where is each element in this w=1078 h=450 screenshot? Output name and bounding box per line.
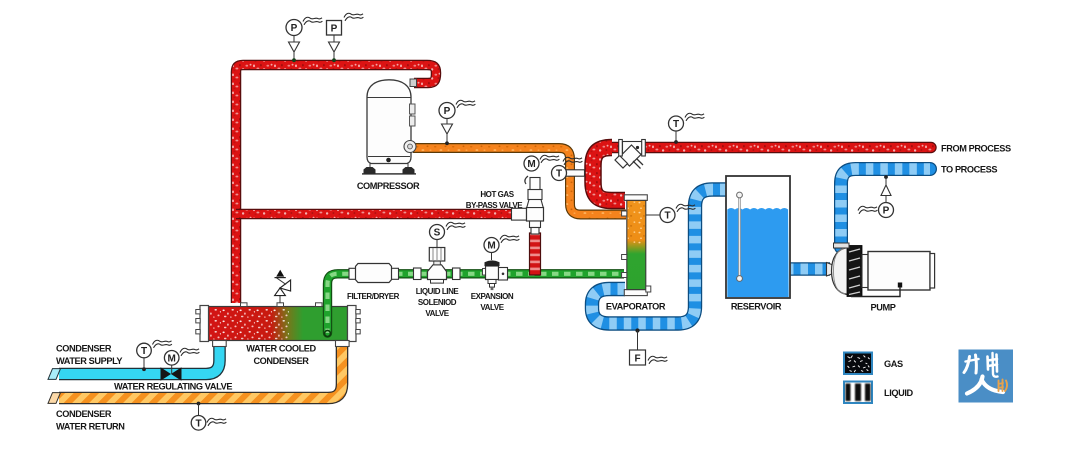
svg-text:VALVE: VALVE <box>425 309 449 318</box>
svg-text:T: T <box>664 211 670 222</box>
svg-text:WATER REGULATING VALVE: WATER REGULATING VALVE <box>114 382 232 392</box>
svg-text:BY-PASS VALVE: BY-PASS VALVE <box>466 201 523 210</box>
svg-text:F: F <box>634 354 640 365</box>
svg-text:M: M <box>168 353 176 364</box>
svg-text:S: S <box>434 228 441 239</box>
svg-text:VALVE: VALVE <box>480 303 504 312</box>
svg-text:CONDENSER: CONDENSER <box>56 409 112 419</box>
svg-text:SOLENIOD: SOLENIOD <box>418 298 457 307</box>
svg-text:CONDENSER: CONDENSER <box>56 344 112 354</box>
svg-text:T: T <box>141 346 147 357</box>
svg-text:P: P <box>291 23 298 34</box>
svg-text:FROM PROCESS: FROM PROCESS <box>941 144 1011 154</box>
svg-text:CONDENSER: CONDENSER <box>253 356 309 366</box>
svg-text:P: P <box>331 23 338 34</box>
svg-text:P: P <box>444 106 451 117</box>
svg-text:RESERVOIR: RESERVOIR <box>731 302 782 312</box>
svg-text:FILTER/DRYER: FILTER/DRYER <box>347 292 400 301</box>
svg-text:EVAPORATOR: EVAPORATOR <box>606 302 666 312</box>
svg-text:T: T <box>195 418 201 429</box>
svg-text:GAS: GAS <box>884 359 903 369</box>
svg-text:WATER COOLED: WATER COOLED <box>246 344 316 354</box>
svg-text:LIQUID: LIQUID <box>884 388 913 398</box>
svg-text:P: P <box>883 206 890 217</box>
svg-text:EXPANSION: EXPANSION <box>471 292 514 301</box>
svg-text:M: M <box>487 241 495 252</box>
svg-text:COMPRESSOR: COMPRESSOR <box>357 181 420 191</box>
svg-text:TO PROCESS: TO PROCESS <box>941 165 997 175</box>
svg-text:T: T <box>556 169 562 180</box>
svg-text:WATER RETURN: WATER RETURN <box>56 422 125 432</box>
svg-text:T: T <box>673 119 679 130</box>
svg-text:M: M <box>527 159 535 170</box>
svg-text:HOT GAS: HOT GAS <box>480 190 514 199</box>
svg-text:LIQUID LINE: LIQUID LINE <box>416 287 460 296</box>
svg-text:PUMP: PUMP <box>871 303 896 313</box>
svg-text:WATER SUPPLY: WATER SUPPLY <box>56 356 122 366</box>
